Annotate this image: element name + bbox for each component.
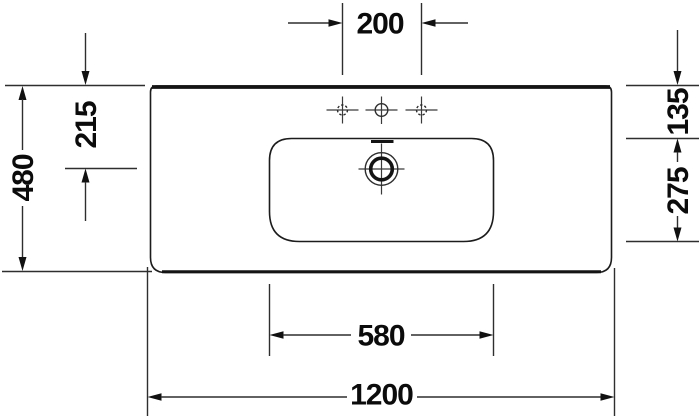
dimension-tap-spacing: 200 [288, 3, 468, 75]
arrowhead-down [19, 257, 27, 271]
arrowhead-left [422, 19, 436, 27]
dimension-right-upper: 135 [626, 30, 699, 139]
dim-label-580: 580 [357, 320, 404, 353]
tap-hole-right [406, 97, 438, 124]
arrowhead-down [82, 71, 90, 85]
arrowhead-right [601, 393, 615, 401]
drain-symbol [359, 144, 405, 195]
arrowhead-right [480, 331, 494, 339]
tap-hole-left [327, 97, 359, 124]
arrowhead-up [82, 169, 90, 183]
arrowhead-right [329, 19, 343, 27]
dim-label-275: 275 [662, 167, 695, 214]
dim-label-135: 135 [662, 88, 695, 135]
arrowhead-down [674, 228, 682, 242]
arrowhead-left [148, 393, 162, 401]
technical-drawing-canvas: 200 480 215 135 275 [0, 0, 700, 420]
dimension-right-lower: 275 [626, 139, 699, 242]
washbasin-drawing: 200 480 215 135 275 [0, 0, 700, 420]
dim-label-215: 215 [70, 101, 103, 148]
arrowhead-up [674, 139, 682, 153]
dim-label-1200: 1200 [350, 379, 413, 412]
dimension-left-inner: 215 [65, 33, 137, 221]
arrowhead-up [19, 86, 27, 100]
dimension-bowl-width: 580 [270, 284, 494, 356]
arrowhead-down [674, 71, 682, 85]
tap-hole-center [366, 97, 398, 125]
dim-label-480: 480 [7, 154, 40, 201]
dim-label-200: 200 [356, 8, 403, 41]
arrowhead-left [270, 331, 284, 339]
